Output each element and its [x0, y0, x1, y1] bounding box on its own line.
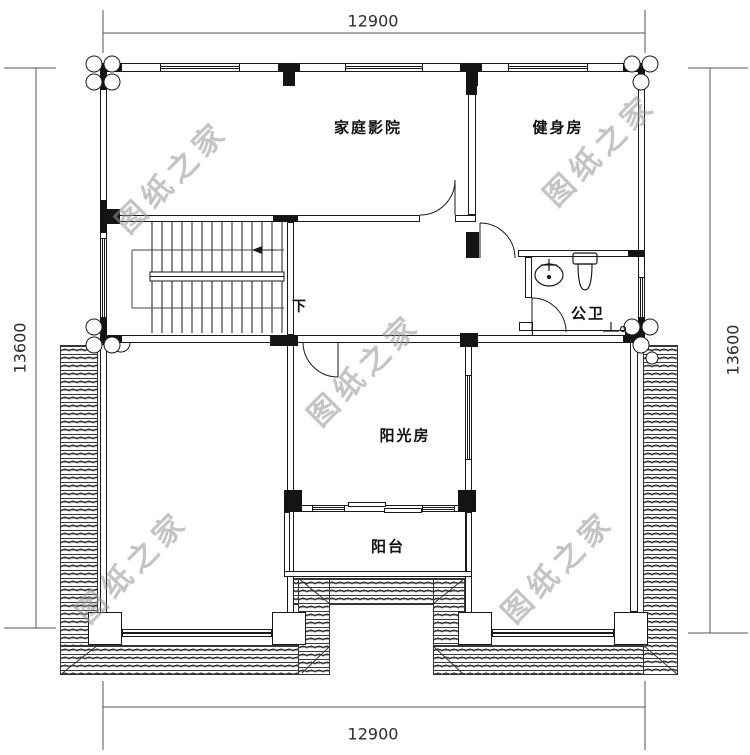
door-home-theater — [420, 180, 455, 215]
dimension-label-top: 12900 — [348, 12, 399, 31]
stairs — [132, 222, 284, 333]
door-gym — [480, 223, 515, 258]
dimension-label-bottom: 12900 — [348, 725, 399, 744]
toilet-icon — [573, 253, 597, 290]
room-label-bathroom: 公卫 — [571, 303, 605, 324]
floor-plan: 家庭影院 健身房 公卫 阳光房 阳台 下 12900 12900 13600 1… — [0, 0, 750, 755]
room-label-gym: 健身房 — [532, 117, 583, 138]
sink-icon — [535, 259, 563, 286]
door-bathroom — [532, 298, 566, 332]
dimension-label-left: 13600 — [11, 323, 30, 374]
room-label-home-theater: 家庭影院 — [334, 117, 402, 138]
stairs-direction-label: 下 — [292, 296, 306, 316]
room-label-balcony: 阳台 — [371, 536, 405, 557]
roof-hip-lines — [60, 578, 678, 675]
stairs-arrow-head — [252, 246, 262, 254]
drain-symbol — [603, 322, 626, 332]
room-label-sunroom: 阳光房 — [379, 425, 430, 446]
dimension-label-right: 13600 — [724, 325, 743, 376]
